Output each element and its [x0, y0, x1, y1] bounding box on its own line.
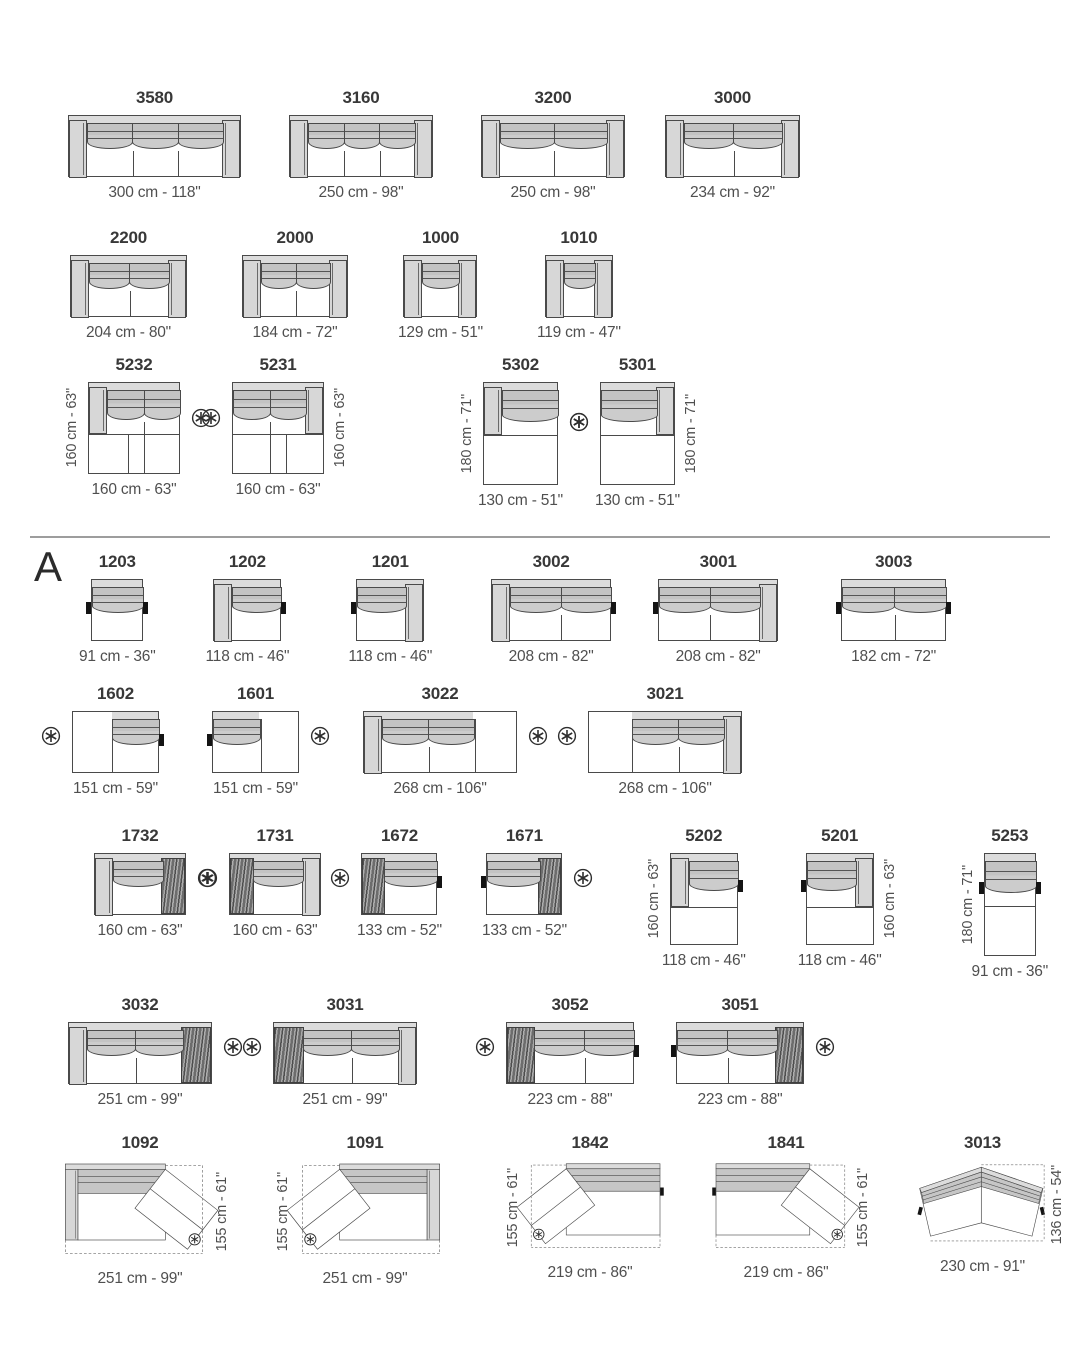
connector-tab — [143, 602, 148, 614]
seat-divider-line — [561, 615, 562, 641]
left-arm — [404, 260, 422, 318]
vertical-dimension: 160 cm - 63" — [330, 383, 350, 473]
arm-inner-line — [597, 263, 598, 315]
arm-inner-line — [461, 263, 462, 315]
cushion-line — [585, 1045, 634, 1046]
back-cushion — [253, 861, 304, 887]
seat-divider-line — [133, 151, 134, 177]
note-asterisk-icon — [223, 1037, 243, 1057]
width-dimension-label: 250 cm - 98" — [511, 184, 596, 202]
cushion-line — [234, 399, 270, 400]
module-diagram: 180 cm - 71" — [984, 853, 1036, 956]
vertical-dimension-label: 160 cm - 63" — [646, 859, 662, 938]
module-1602: 1602151 cm - 59" — [72, 684, 159, 798]
back-cushions — [384, 861, 438, 887]
cushion-line — [345, 138, 380, 139]
note-asterisk-icon — [201, 408, 221, 428]
width-dimension-label: 300 cm - 118" — [108, 184, 200, 202]
cushion-line — [345, 131, 380, 132]
right-arm — [781, 120, 799, 178]
back-cushion — [261, 263, 297, 289]
section-divider — [30, 536, 1050, 538]
arm-inner-line — [308, 390, 309, 431]
cushion-line — [108, 407, 144, 408]
back-cushions — [689, 861, 739, 891]
cushion-line — [271, 399, 307, 400]
model-number: 3032 — [121, 995, 158, 1015]
module-diagram — [363, 711, 517, 773]
model-number: 1092 — [121, 1133, 158, 1153]
cushion-line — [93, 602, 143, 603]
seam-line — [89, 434, 179, 435]
cushion-line — [678, 1038, 727, 1039]
seat-divider-line — [130, 291, 131, 317]
module-diagram — [658, 579, 778, 641]
arm-inner-line — [305, 861, 306, 913]
right-arm — [855, 858, 873, 907]
cushion-line — [685, 131, 733, 132]
arm-inner-line — [103, 390, 104, 431]
seat-divider-line — [112, 719, 113, 773]
back-cushion — [807, 861, 857, 891]
back-cushion — [270, 390, 308, 420]
cushion-line — [358, 602, 406, 603]
back-cushion — [678, 719, 725, 745]
back-cushion — [144, 390, 182, 420]
module-row-8: 1092155 cm - 61"251 cm - 99"1091155 cm -… — [0, 1133, 1080, 1288]
model-number: 1010 — [560, 228, 597, 248]
back-cushion — [500, 123, 555, 149]
cushion-line — [808, 878, 856, 879]
cushion-line — [711, 595, 761, 596]
module-diagram — [491, 579, 611, 641]
model-number: 5201 — [821, 826, 858, 846]
note-asterisk-icon — [475, 1037, 495, 1057]
arm-inner-line — [418, 263, 419, 315]
module-1601: 1601151 cm - 59" — [212, 684, 299, 798]
module-diagram: 136 cm - 54" — [910, 1160, 1055, 1256]
module-diagram — [229, 853, 321, 915]
back-cushion — [112, 719, 160, 745]
back-cushion — [584, 1030, 635, 1056]
cushion-line — [234, 407, 270, 408]
model-number: 3022 — [421, 684, 458, 704]
vertical-dimension-label: 160 cm - 63" — [882, 859, 898, 938]
width-dimension-label: 160 cm - 63" — [92, 481, 177, 499]
connector-tab — [86, 602, 91, 614]
cushion-line — [233, 595, 281, 596]
cushion-line — [88, 138, 132, 139]
back-cushions — [807, 861, 857, 891]
back-cushion — [135, 1030, 184, 1056]
module-diagram — [213, 579, 281, 641]
width-dimension-label: 230 cm - 91" — [940, 1258, 1025, 1276]
model-number: 1000 — [422, 228, 459, 248]
back-cushion — [894, 587, 947, 613]
note-asterisk-icon — [815, 1037, 835, 1057]
arm-inner-line — [784, 123, 785, 175]
cushion-line — [711, 602, 761, 603]
width-dimension-label: 151 cm - 59" — [213, 780, 298, 798]
back-cushions — [112, 719, 160, 745]
back-cushions — [684, 123, 783, 149]
texture-panel — [181, 1027, 211, 1083]
width-dimension-label: 251 cm - 99" — [323, 1270, 408, 1288]
back-cushion — [308, 123, 345, 149]
module-5231: 5231160 cm - 63"160 cm - 63" — [232, 355, 324, 499]
cushion-line — [133, 131, 177, 132]
vertical-dimension-label: 180 cm - 71" — [683, 394, 699, 473]
connector-tab — [437, 876, 442, 888]
cushion-line — [297, 278, 331, 279]
vertical-dimension: 155 cm - 61" — [273, 1172, 293, 1250]
seat-divider-line — [554, 151, 555, 177]
module-diagram — [665, 115, 800, 177]
cushion-line — [728, 1038, 777, 1039]
back-cushion — [351, 1030, 400, 1056]
seam-line — [601, 435, 674, 436]
vertical-dimension-label: 155 cm - 61" — [505, 1168, 521, 1247]
cushion-line — [133, 138, 177, 139]
texture-panel — [362, 858, 385, 914]
arm-inner-line — [498, 390, 499, 432]
cushion-line — [660, 602, 710, 603]
model-number: 5253 — [991, 826, 1028, 846]
right-arm — [458, 260, 476, 318]
cushion-line — [136, 1038, 183, 1039]
cushion-line — [383, 734, 428, 735]
model-number: 1842 — [571, 1133, 608, 1153]
back-cushions — [232, 587, 282, 613]
arm-inner-line — [680, 123, 681, 175]
width-dimension-label: 160 cm - 63" — [233, 922, 318, 940]
right-arm — [405, 584, 423, 642]
module-row-5: 1602151 cm - 59"1601151 cm - 59"3022268 … — [0, 684, 1080, 798]
module-1671: 1671133 cm - 52" — [482, 826, 567, 940]
cushion-line — [385, 876, 437, 877]
module-3580: 3580300 cm - 118" — [68, 88, 241, 202]
cushion-line — [88, 1045, 135, 1046]
back-cushion — [733, 123, 783, 149]
back-cushion — [296, 263, 332, 289]
module-diagram — [242, 255, 348, 317]
model-number: 1602 — [97, 684, 134, 704]
module-3022: 3022268 cm - 106" — [363, 684, 517, 798]
seat-divider-line — [728, 1058, 729, 1084]
model-number: 1202 — [229, 552, 266, 572]
cushion-line — [179, 131, 223, 132]
cushion-line — [679, 734, 724, 735]
module-3013: 3013136 cm - 54"230 cm - 91" — [910, 1133, 1055, 1276]
left-arm — [69, 120, 87, 178]
cushion-line — [304, 1038, 351, 1039]
texture-panel — [775, 1027, 803, 1083]
left-arm — [69, 1027, 87, 1085]
seat-divider-line — [585, 1058, 586, 1084]
back-cushion — [87, 123, 133, 149]
cushion-line — [562, 602, 612, 603]
back-cushions — [659, 587, 761, 613]
cushion-line — [254, 869, 303, 870]
left-arm — [364, 716, 382, 774]
module-diagram: 160 cm - 63" — [232, 382, 324, 474]
module-2000: 2000184 cm - 72" — [242, 228, 348, 342]
connector-tab — [946, 602, 951, 614]
seat-divider-line — [136, 1058, 137, 1084]
back-cushions — [487, 861, 541, 887]
left-arm — [95, 858, 113, 916]
vertical-dimension: 155 cm - 61" — [212, 1172, 232, 1250]
module-diagram — [94, 853, 186, 915]
vertical-dimension: 155 cm - 61" — [853, 1172, 873, 1244]
module-diagram: 160 cm - 63" — [670, 853, 738, 945]
back-cushion — [344, 123, 381, 149]
connector-tab — [653, 602, 658, 614]
back-cushions — [113, 861, 164, 887]
seat-divider-line — [296, 291, 297, 317]
right-arm — [398, 1027, 416, 1085]
width-dimension-label: 133 cm - 52" — [482, 922, 567, 940]
back-cushions — [89, 263, 170, 289]
note-asterisk-icon — [528, 726, 548, 746]
connector-tab — [1036, 882, 1041, 894]
width-dimension-label: 130 cm - 51" — [595, 492, 680, 510]
vertical-dimension: 160 cm - 63" — [880, 854, 900, 944]
cushion-line — [602, 408, 657, 409]
model-number: 1841 — [767, 1133, 804, 1153]
back-cushion — [689, 861, 739, 891]
arm-inner-line — [417, 123, 418, 175]
module-diagram — [481, 115, 625, 177]
module-diagram — [403, 255, 477, 317]
model-number: 3051 — [721, 995, 758, 1015]
seat-divider-line — [895, 615, 896, 641]
back-cushion — [233, 390, 271, 420]
width-dimension-label: 118 cm - 46" — [662, 952, 746, 970]
cushion-line — [114, 869, 163, 870]
cushion-line — [895, 595, 946, 596]
arm-inner-line — [83, 1030, 84, 1082]
back-cushions — [87, 123, 224, 149]
cushion-line — [358, 595, 406, 596]
model-number: 3160 — [342, 88, 379, 108]
arm-inner-line — [85, 263, 86, 315]
cushion-line — [254, 876, 303, 877]
connector-tab — [207, 734, 212, 746]
width-dimension-label: 160 cm - 63" — [98, 922, 183, 940]
arm-inner-line — [506, 587, 507, 639]
module-row-7: 3032251 cm - 99"3031251 cm - 99"3052223 … — [0, 995, 1080, 1109]
cushion-line — [423, 278, 459, 279]
cushion-line — [88, 1038, 135, 1039]
left-arm — [671, 858, 689, 907]
vertical-dimension-label: 180 cm - 71" — [960, 865, 976, 944]
left-arm — [243, 260, 261, 318]
vertical-dimension-label: 180 cm - 71" — [459, 394, 475, 473]
cushion-line — [93, 595, 143, 596]
module-diagram — [841, 579, 946, 641]
back-cushions — [382, 719, 475, 745]
model-number: 2200 — [110, 228, 147, 248]
back-cushion — [87, 1030, 136, 1056]
back-cushions — [303, 1030, 400, 1056]
cushion-line — [130, 278, 169, 279]
module-diagram: 155 cm - 61" — [711, 1160, 861, 1262]
back-cushions — [564, 263, 596, 289]
cushion-line — [562, 595, 612, 596]
model-number: 5301 — [619, 355, 656, 375]
connector-tab — [979, 882, 984, 894]
back-cushions — [308, 123, 416, 149]
vertical-dimension-label: 136 cm - 54" — [1049, 1165, 1065, 1244]
cushion-line — [214, 727, 260, 728]
width-dimension-label: 119 cm - 47" — [537, 324, 621, 342]
model-number: 5232 — [115, 355, 152, 375]
note-asterisk-icon — [242, 1037, 262, 1057]
back-cushion — [428, 719, 475, 745]
width-dimension-label: 223 cm - 88" — [528, 1091, 613, 1109]
model-number: 3021 — [646, 684, 683, 704]
back-cushion — [232, 587, 282, 613]
seat-divider-line — [380, 151, 381, 177]
cushion-line — [734, 138, 782, 139]
model-number: 1732 — [121, 826, 158, 846]
width-dimension-label: 219 cm - 86" — [548, 1264, 633, 1282]
back-cushions — [107, 390, 181, 420]
back-cushion — [502, 390, 559, 422]
module-diagram: 155 cm - 61" — [285, 1160, 445, 1268]
width-dimension-label: 182 cm - 72" — [851, 648, 936, 666]
cushion-line — [385, 869, 437, 870]
right-arm — [759, 584, 777, 642]
left-arm — [89, 387, 107, 434]
connector-tab — [611, 602, 616, 614]
back-cushion — [357, 587, 407, 613]
cushion-line — [90, 278, 129, 279]
cushion-line — [233, 602, 281, 603]
width-dimension-label: 118 cm - 46" — [206, 648, 290, 666]
width-dimension-label: 223 cm - 88" — [698, 1091, 783, 1109]
module-diagram: 155 cm - 61" — [60, 1160, 220, 1268]
cushion-line — [429, 734, 474, 735]
cushion-line — [808, 870, 856, 871]
back-cushions — [233, 390, 307, 420]
vertical-dimension: 136 cm - 54" — [1047, 1172, 1067, 1238]
arm-inner-line — [378, 719, 379, 771]
module-diagram — [588, 711, 742, 773]
cushion-line — [380, 138, 415, 139]
module-1201: 1201118 cm - 46" — [348, 552, 432, 666]
vertical-dimension-label: 155 cm - 61" — [855, 1168, 871, 1247]
cushion-line — [108, 399, 144, 400]
vertical-dimension-label: 160 cm - 63" — [332, 388, 348, 467]
left-arm — [482, 120, 500, 178]
width-dimension-label: 91 cm - 36" — [972, 963, 1049, 981]
cushion-line — [488, 869, 540, 870]
cushion-line — [690, 870, 738, 871]
back-cushion — [379, 123, 416, 149]
back-cushion — [601, 390, 658, 422]
width-dimension-label: 160 cm - 63" — [236, 481, 321, 499]
arm-inner-line — [304, 123, 305, 175]
seam-line — [807, 907, 873, 908]
back-cushion — [382, 719, 429, 745]
seat-divider-line — [178, 151, 179, 177]
vertical-dimension: 160 cm - 63" — [62, 383, 82, 473]
module-3051: 3051223 cm - 88" — [676, 995, 804, 1109]
cushion-line — [113, 727, 159, 728]
width-dimension-label: 208 cm - 82" — [509, 648, 594, 666]
connector-tab — [738, 880, 743, 892]
back-cushion — [107, 390, 145, 420]
back-cushion — [213, 719, 261, 745]
seat-divider-line — [286, 434, 287, 474]
width-dimension-label: 118 cm - 46" — [348, 648, 432, 666]
width-dimension-label: 219 cm - 86" — [744, 1264, 829, 1282]
cushion-line — [501, 131, 554, 132]
back-cushion — [89, 263, 130, 289]
note-asterisk-icon — [557, 726, 577, 746]
cushion-line — [633, 727, 678, 728]
back-cushion — [632, 719, 679, 745]
module-2200: 2200204 cm - 80" — [70, 228, 187, 342]
right-arm — [723, 716, 741, 774]
right-arm — [606, 120, 624, 178]
module-3003: 3003182 cm - 72" — [841, 552, 946, 666]
connector-tab — [836, 602, 841, 614]
width-dimension-label: 118 cm - 46" — [798, 952, 882, 970]
left-arm — [71, 260, 89, 318]
module-1203: 120391 cm - 36" — [79, 552, 156, 666]
note-asterisk-icon — [41, 726, 61, 746]
back-cushions — [87, 1030, 184, 1056]
back-cushion — [727, 1030, 778, 1056]
back-cushion — [659, 587, 711, 613]
right-arm — [414, 120, 432, 178]
back-cushions — [601, 390, 658, 422]
module-1731: 1731160 cm - 63" — [229, 826, 321, 940]
arm-inner-line — [228, 587, 229, 639]
left-arm — [666, 120, 684, 178]
cushion-line — [90, 271, 129, 272]
cushion-line — [309, 131, 344, 132]
model-number: 1601 — [237, 684, 274, 704]
model-number: 5202 — [685, 826, 722, 846]
cushion-line — [633, 734, 678, 735]
texture-panel — [230, 858, 254, 914]
left-arm — [484, 387, 502, 435]
back-cushions — [677, 1030, 778, 1056]
model-number: 5231 — [259, 355, 296, 375]
width-dimension-label: 208 cm - 82" — [676, 648, 761, 666]
vertical-dimension: 160 cm - 63" — [644, 854, 664, 944]
model-number: 3000 — [714, 88, 751, 108]
module-3000: 3000234 cm - 92" — [665, 88, 800, 202]
module-row-3: 5232160 cm - 63"160 cm - 63"5231160 cm -… — [0, 355, 1080, 510]
module-3200: 3200250 cm - 98" — [481, 88, 625, 202]
module-diagram — [486, 853, 562, 915]
cushion-line — [429, 727, 474, 728]
cushion-line — [501, 138, 554, 139]
module-diagram — [545, 255, 613, 317]
seat-divider-line — [734, 151, 735, 177]
module-1091: 1091155 cm - 61"251 cm - 99" — [285, 1133, 445, 1288]
arm-inner-line — [225, 123, 226, 175]
cushion-line — [145, 407, 181, 408]
right-arm — [656, 387, 674, 435]
module-1672: 1672133 cm - 52" — [357, 826, 442, 940]
model-number: 3031 — [326, 995, 363, 1015]
